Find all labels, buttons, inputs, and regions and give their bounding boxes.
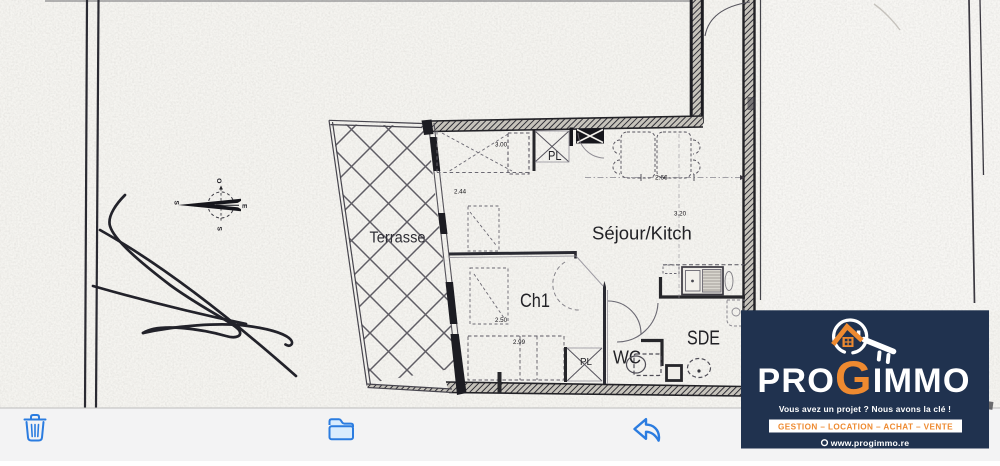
svg-text:O: O bbox=[215, 178, 222, 183]
svg-text:E: E bbox=[241, 204, 248, 209]
svg-text:2.44: 2.44 bbox=[454, 189, 467, 196]
svg-text:Vous avez un projet ? Nous avo: Vous avez un projet ? Nous avons la clé … bbox=[779, 404, 951, 414]
svg-text:Ch1: Ch1 bbox=[520, 291, 550, 312]
svg-text:SDE: SDE bbox=[687, 328, 720, 350]
svg-text:www.progimmo.re: www.progimmo.re bbox=[830, 438, 909, 448]
svg-text:2.50: 2.50 bbox=[495, 317, 508, 324]
svg-text:S: S bbox=[173, 201, 180, 206]
svg-text:3.00: 3.00 bbox=[495, 142, 508, 149]
svg-text:Séjour/Kitch: Séjour/Kitch bbox=[592, 223, 692, 244]
svg-text:PL: PL bbox=[548, 149, 562, 163]
svg-text:3.20: 3.20 bbox=[674, 211, 687, 218]
svg-text:2.99: 2.99 bbox=[513, 339, 526, 346]
svg-text:GESTION – LOCATION – ACHAT – V: GESTION – LOCATION – ACHAT – VENTE bbox=[778, 423, 953, 432]
svg-text:PL: PL bbox=[580, 356, 592, 368]
svg-text:Terrasse: Terrasse bbox=[370, 230, 426, 247]
svg-text:S: S bbox=[216, 227, 223, 232]
svg-text:2.66: 2.66 bbox=[655, 175, 668, 182]
